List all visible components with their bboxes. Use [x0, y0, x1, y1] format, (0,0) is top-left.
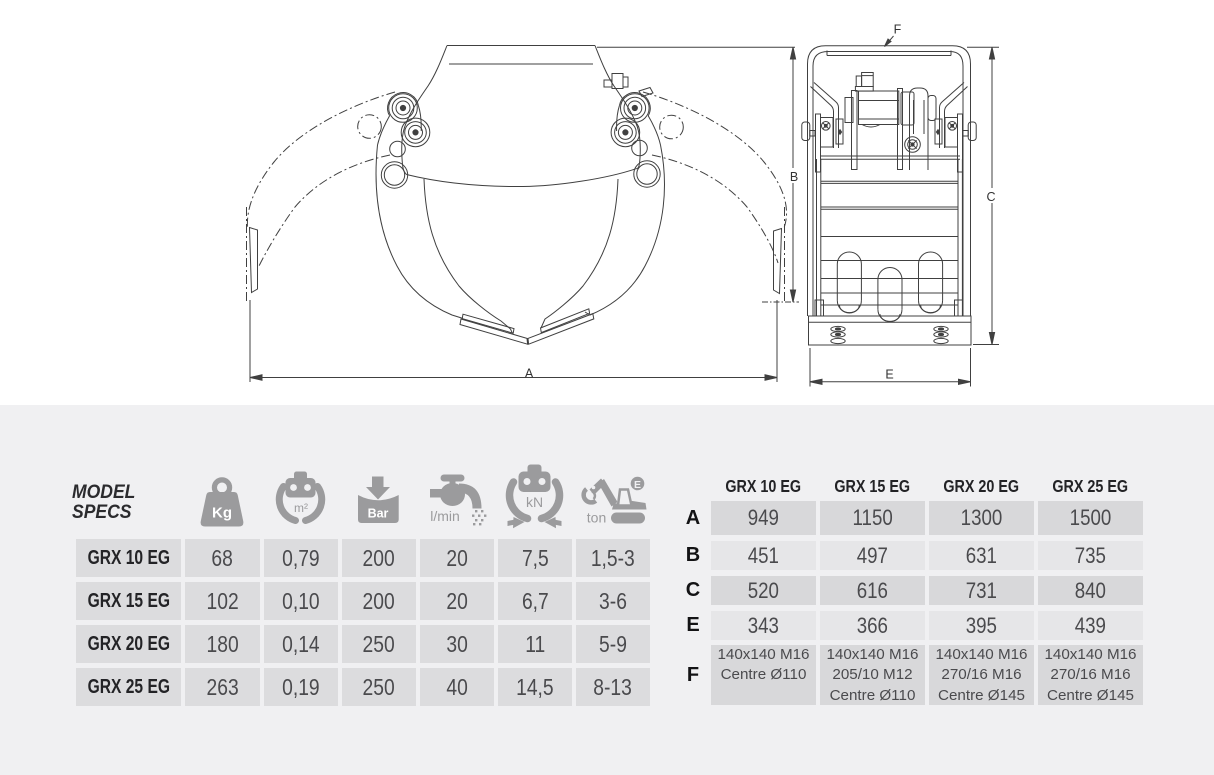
svg-text:A: A — [525, 367, 534, 381]
svg-text:kN: kN — [526, 494, 543, 510]
svg-text:Kg: Kg — [212, 505, 232, 522]
svg-text:C: C — [986, 190, 995, 204]
svg-text:B: B — [790, 170, 798, 184]
svg-text:ton: ton — [587, 510, 606, 526]
svg-text:l/min: l/min — [430, 508, 460, 524]
svg-text:E: E — [885, 368, 893, 382]
svg-text:Bar: Bar — [368, 507, 389, 521]
svg-text:m²: m² — [294, 501, 308, 515]
svg-text:E: E — [634, 479, 641, 491]
svg-text:F: F — [894, 23, 902, 37]
